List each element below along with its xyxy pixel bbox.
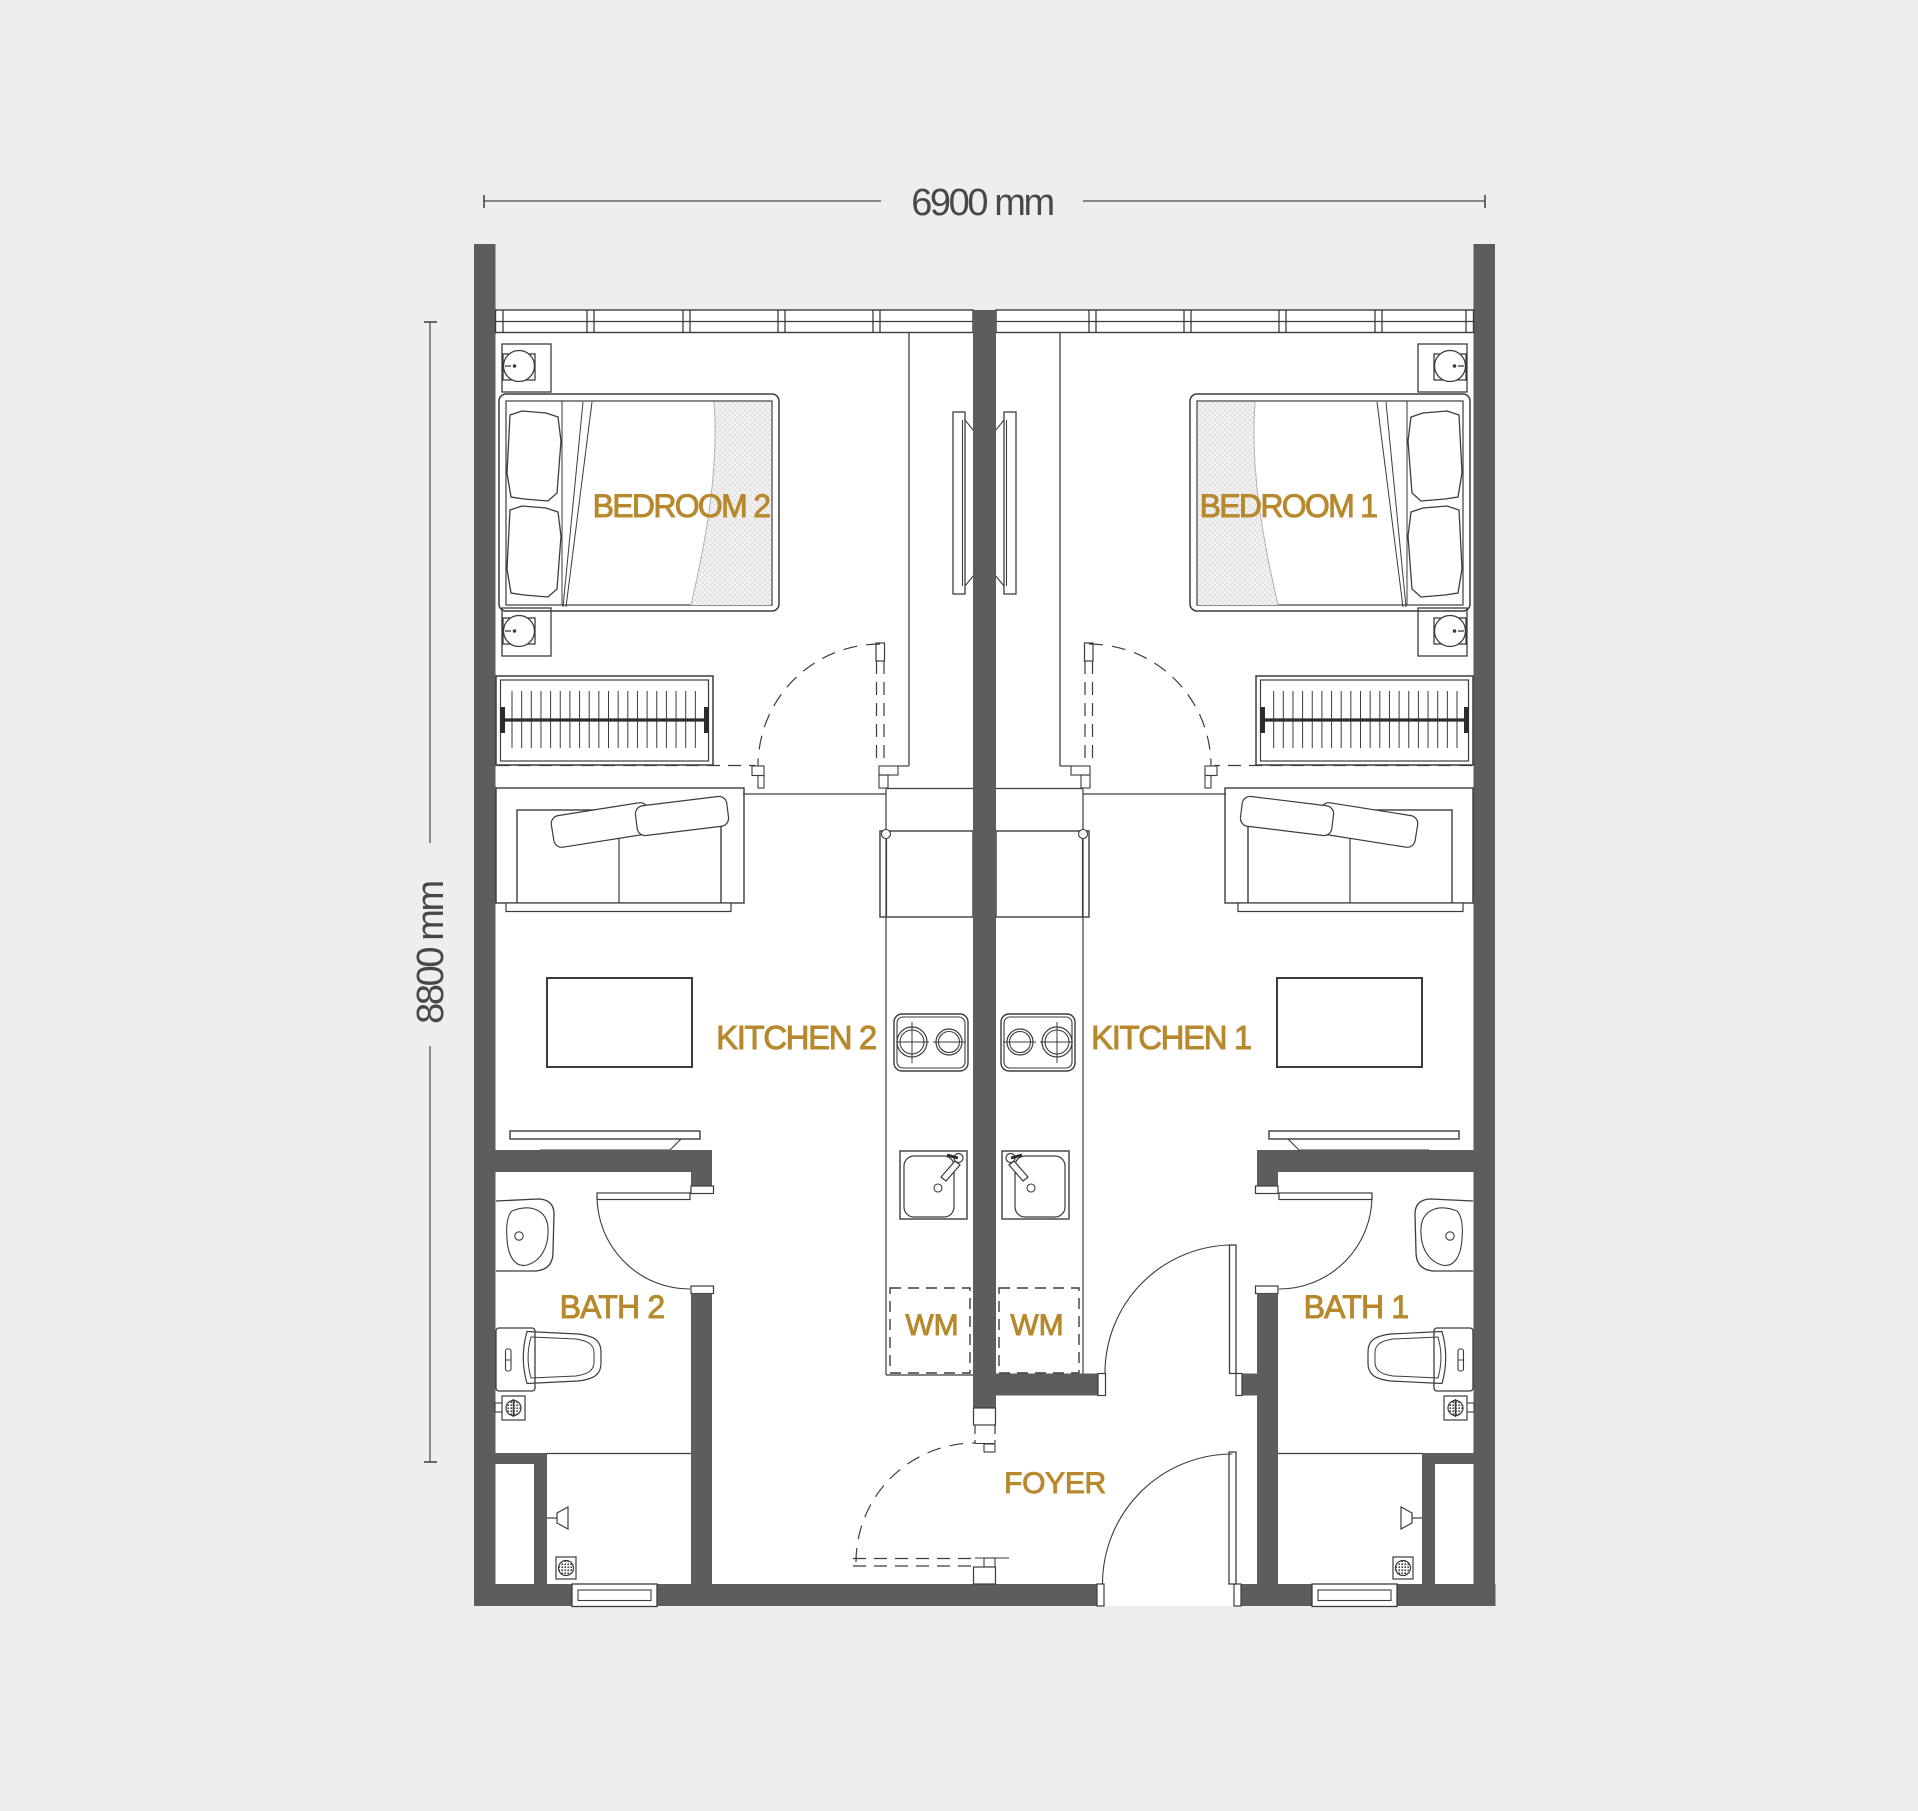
svg-text:BATH 2: BATH 2 bbox=[560, 1289, 665, 1325]
svg-text:8800 mm: 8800 mm bbox=[410, 881, 452, 1023]
svg-text:6900 mm: 6900 mm bbox=[911, 182, 1053, 224]
svg-text:BEDROOM 2: BEDROOM 2 bbox=[593, 488, 771, 524]
svg-text:KITCHEN 2: KITCHEN 2 bbox=[716, 1019, 876, 1056]
svg-text:KITCHEN 1: KITCHEN 1 bbox=[1091, 1019, 1251, 1056]
svg-text:BATH 1: BATH 1 bbox=[1304, 1289, 1409, 1325]
svg-text:FOYER: FOYER bbox=[1004, 1467, 1106, 1500]
svg-text:WM: WM bbox=[905, 1309, 958, 1342]
svg-text:BEDROOM 1: BEDROOM 1 bbox=[1200, 488, 1378, 524]
svg-text:WM: WM bbox=[1010, 1309, 1063, 1342]
